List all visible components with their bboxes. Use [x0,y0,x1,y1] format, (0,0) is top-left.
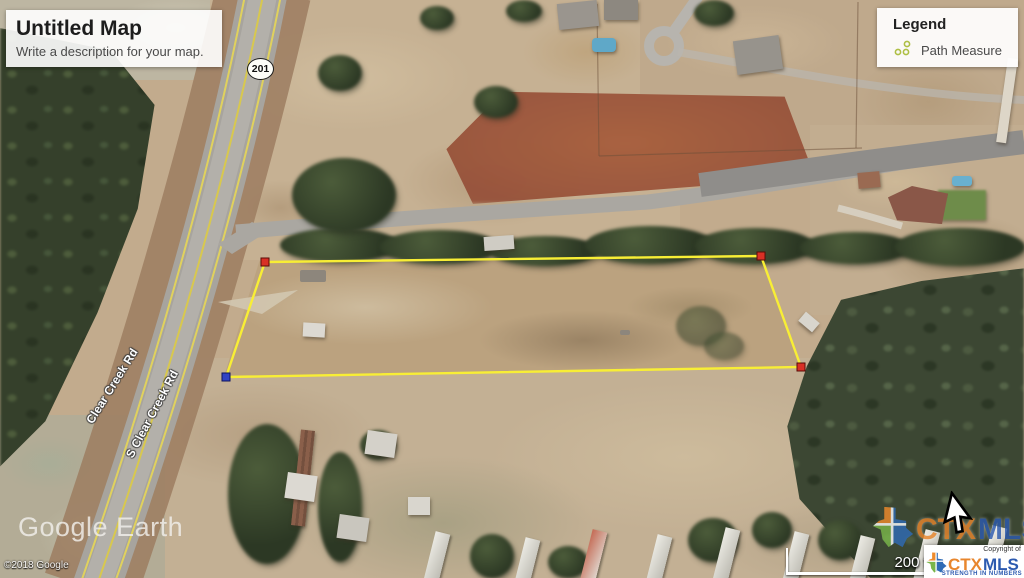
ctxmls-tagline: STRENGTH IN NUMBERS [942,571,1022,577]
map-canvas[interactable]: 201 Clear Creek Rd S Clear Creek Rd Unti… [0,0,1024,578]
legend-title: Legend [893,16,1018,33]
parcel-vertex-marker[interactable] [757,252,765,260]
texas-state-icon [872,506,914,553]
legend-card: Legend Path Measure [877,8,1018,67]
mls-text: MLS [978,513,1024,547]
legend-item-label: Path Measure [921,43,1002,58]
map-title: Untitled Map [16,17,222,41]
path-measure-icon [893,39,913,62]
parcel-outline-layer [0,0,1024,578]
route-shield-201: 201 [247,58,274,80]
ctxmls-logo-badge: Copyright of CTXMLS STRENGTH IN NUMBERS [924,545,1024,578]
map-description: Write a description for your map. [16,44,222,59]
parcel-vertex-marker[interactable] [261,258,269,266]
parcel-vertex-marker[interactable] [797,363,805,371]
map-title-card[interactable]: Untitled Map Write a description for you… [6,10,222,67]
parcel-boundary[interactable] [226,256,801,377]
parcel-vertex-marker[interactable] [222,373,230,381]
google-earth-watermark: Google Earth [18,512,183,543]
legend-item-path-measure[interactable]: Path Measure [893,39,1018,62]
google-copyright: ©2018 Google [4,560,69,571]
